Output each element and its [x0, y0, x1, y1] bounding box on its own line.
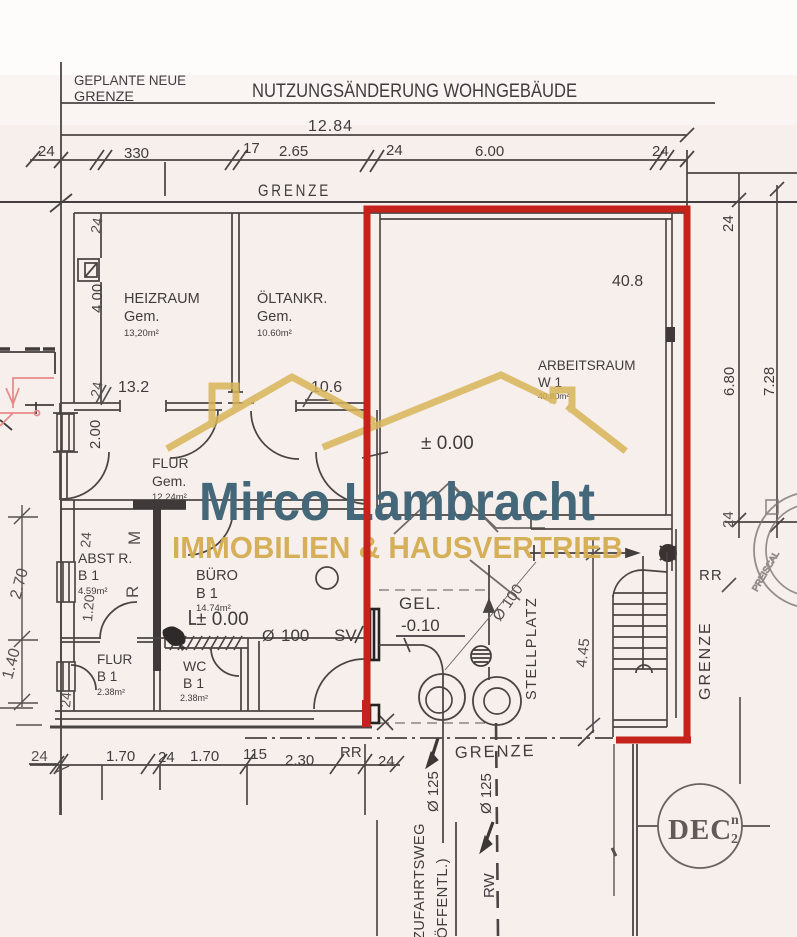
svg-text:Gem.: Gem.: [152, 473, 186, 489]
svg-text:100: 100: [281, 626, 309, 645]
svg-text:GEL.: GEL.: [399, 594, 442, 613]
svg-text:330: 330: [124, 145, 149, 162]
svg-text:ZUFAHRTSWEG: ZUFAHRTSWEG: [411, 823, 428, 937]
svg-text:24: 24: [87, 380, 105, 398]
svg-text:115: 115: [243, 746, 267, 763]
svg-text:24: 24: [386, 142, 403, 159]
svg-text:Mirco Lambracht: Mirco Lambracht: [199, 472, 595, 532]
svg-text:B 1: B 1: [183, 675, 204, 691]
svg-text:24: 24: [38, 143, 55, 160]
svg-text:10.60m²: 10.60m²: [257, 328, 292, 339]
svg-text:Ø 125: Ø 125: [478, 773, 495, 814]
svg-text:IMMOBILIEN & HAUSVERTRIEB: IMMOBILIEN & HAUSVERTRIEB: [172, 530, 623, 565]
svg-text:WC: WC: [183, 658, 206, 674]
svg-text:STELLPLATZ: STELLPLATZ: [524, 597, 540, 700]
svg-text:24: 24: [720, 511, 737, 528]
svg-text:7.28: 7.28: [761, 367, 778, 396]
svg-text:1.70: 1.70: [106, 748, 135, 765]
svg-text:13,20m²: 13,20m²: [124, 328, 159, 339]
svg-text:BÜRO: BÜRO: [196, 566, 238, 584]
svg-text:RW: RW: [481, 872, 498, 898]
svg-text:17: 17: [243, 140, 260, 157]
svg-text:RR: RR: [340, 744, 362, 761]
svg-text:n: n: [731, 813, 739, 828]
svg-text:12.84: 12.84: [308, 118, 353, 135]
svg-text:GEPLANTE NEUE: GEPLANTE NEUE: [74, 73, 186, 88]
svg-text:2.00: 2.00: [87, 420, 104, 449]
svg-text:24: 24: [720, 215, 737, 232]
svg-text:1.70: 1.70: [190, 748, 219, 765]
svg-text:ÖLTANKR.: ÖLTANKR.: [257, 289, 327, 307]
svg-text:DEC: DEC: [668, 814, 732, 846]
svg-text:GRENZE: GRENZE: [258, 181, 331, 200]
svg-text:ARBEITSRAUM: ARBEITSRAUM: [538, 358, 636, 373]
svg-text:NUTZUNGSÄNDERUNG WOHNGEBÄUDE: NUTZUNGSÄNDERUNG WOHNGEBÄUDE: [252, 80, 577, 102]
svg-text:GRENZE: GRENZE: [455, 742, 536, 762]
svg-text:Gem.: Gem.: [124, 309, 159, 325]
svg-text:B 1: B 1: [78, 567, 99, 583]
svg-text:24: 24: [57, 691, 74, 708]
svg-text:B 1: B 1: [196, 586, 218, 602]
svg-text:Ø 125: Ø 125: [425, 771, 442, 812]
svg-text:± 0.00: ± 0.00: [421, 433, 474, 454]
svg-text:24: 24: [378, 753, 395, 770]
svg-text:-0.10: -0.10: [401, 616, 440, 635]
svg-text:FLUR: FLUR: [97, 652, 133, 667]
svg-text:6.80: 6.80: [721, 367, 738, 396]
svg-text:2.38m²: 2.38m²: [97, 687, 125, 697]
svg-text:Ø: Ø: [262, 628, 274, 645]
svg-text:B 1: B 1: [97, 669, 117, 684]
svg-text:24: 24: [652, 143, 669, 160]
svg-text:24: 24: [77, 531, 94, 548]
svg-text:4.45: 4.45: [573, 637, 593, 668]
svg-text:2: 2: [731, 832, 738, 847]
svg-text:GRENZE: GRENZE: [74, 89, 134, 104]
svg-text:4.00: 4.00: [89, 284, 106, 313]
svg-text:24: 24: [31, 748, 48, 765]
svg-text:2.65: 2.65: [279, 143, 308, 160]
svg-text:6.00: 6.00: [475, 143, 504, 160]
svg-text:40.8: 40.8: [612, 273, 643, 290]
svg-text:Gem.: Gem.: [257, 309, 292, 325]
svg-text:2.30: 2.30: [285, 752, 314, 769]
svg-text:FLUR: FLUR: [152, 455, 189, 471]
svg-text:24: 24: [158, 749, 175, 766]
svg-text:ABST R.: ABST R.: [78, 550, 132, 566]
svg-text:13.2: 13.2: [118, 379, 149, 396]
svg-text:R: R: [123, 586, 142, 598]
svg-text:2.38m²: 2.38m²: [180, 693, 208, 703]
svg-text:RR: RR: [699, 567, 723, 584]
svg-text:M: M: [125, 531, 144, 545]
svg-text:1.20: 1.20: [79, 594, 97, 623]
svg-text:GRENZE: GRENZE: [697, 621, 714, 700]
svg-text:(ÖFFENTL.): (ÖFFENTL.): [433, 858, 451, 937]
svg-text:SV: SV: [334, 626, 357, 645]
svg-text:± 0.00: ± 0.00: [196, 609, 249, 630]
svg-text:HEIZRAUM: HEIZRAUM: [124, 291, 200, 307]
svg-text:24: 24: [87, 216, 105, 234]
